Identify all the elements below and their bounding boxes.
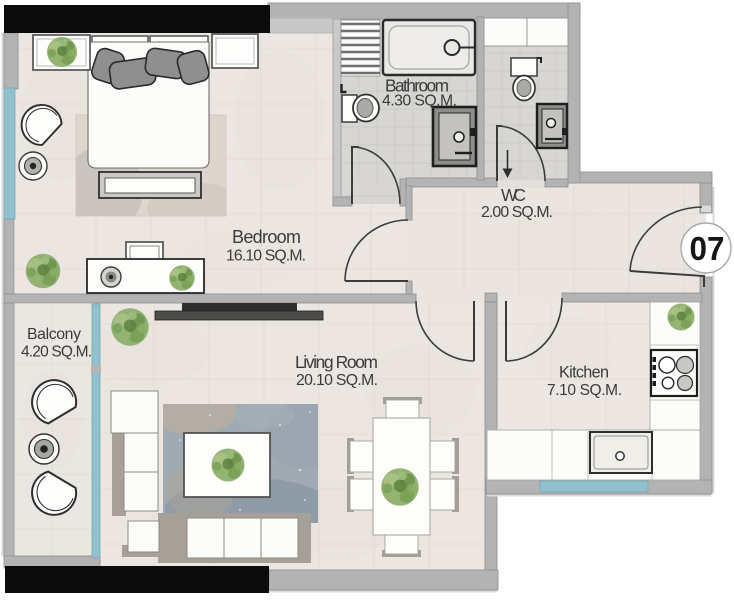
svg-text:07: 07 [690,230,725,267]
svg-text:2.00 SQ.M.: 2.00 SQ.M. [481,204,553,221]
svg-text:Living Room: Living Room [295,352,378,372]
svg-text:7.10 SQ.M.: 7.10 SQ.M. [547,382,622,399]
svg-text:4.30 SQ.M.: 4.30 SQ.M. [382,93,457,110]
svg-text:WC: WC [501,185,526,205]
svg-text:16.10 SQ.M.: 16.10 SQ.M. [226,248,306,265]
svg-text:Kitchen: Kitchen [559,364,609,382]
svg-text:Bedroom: Bedroom [232,227,301,247]
svg-text:20.10 SQ.M.: 20.10 SQ.M. [296,372,378,389]
svg-text:Balcony: Balcony [27,326,81,343]
svg-text:4.20 SQ.M.: 4.20 SQ.M. [21,344,92,361]
